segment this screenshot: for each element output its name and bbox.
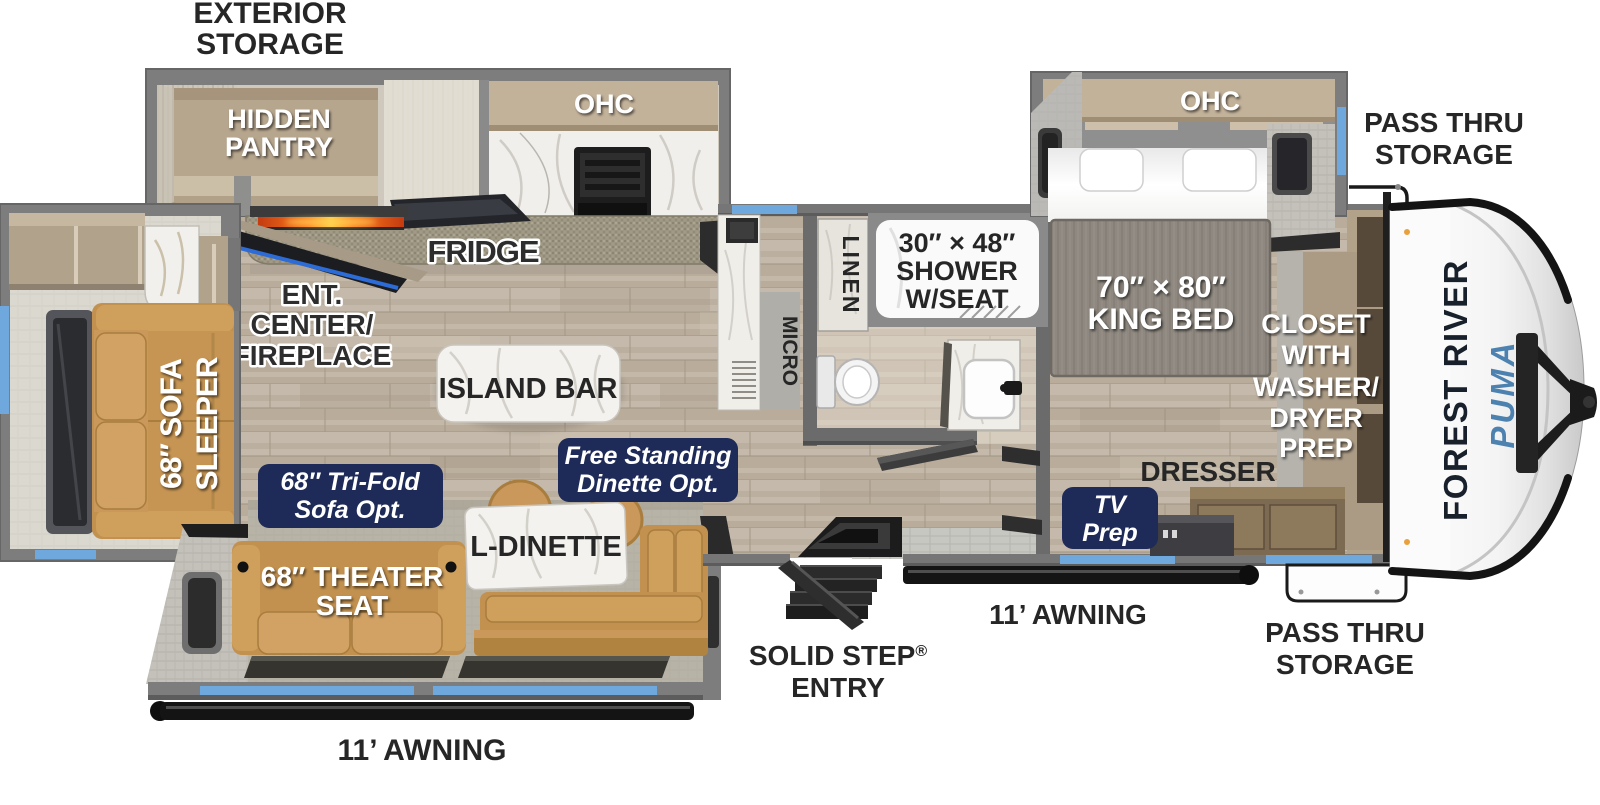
- svg-text:STORAGE: STORAGE: [196, 28, 344, 61]
- svg-text:LINEN: LINEN: [838, 236, 864, 315]
- svg-text:FRIDGE: FRIDGE: [427, 234, 538, 269]
- svg-text:SHOWER: SHOWER: [896, 256, 1018, 286]
- svg-text:W/SEAT: W/SEAT: [906, 284, 1009, 314]
- svg-text:11’ AWNING: 11’ AWNING: [338, 734, 507, 767]
- svg-text:HIDDEN: HIDDEN: [227, 104, 331, 134]
- svg-text:SLEEPER: SLEEPER: [191, 356, 224, 490]
- svg-text:OHC: OHC: [1180, 86, 1240, 116]
- svg-text:Dinette Opt.: Dinette Opt.: [577, 470, 719, 498]
- svg-text:OHC: OHC: [574, 89, 634, 119]
- svg-text:L-DINETTE: L-DINETTE: [470, 531, 621, 563]
- svg-text:PUMA: PUMA: [1484, 339, 1521, 448]
- svg-text:68″ THEATER: 68″ THEATER: [261, 561, 443, 592]
- svg-text:ISLAND BAR: ISLAND BAR: [439, 373, 618, 405]
- svg-text:STORAGE: STORAGE: [1276, 649, 1414, 680]
- svg-text:68″ SOFA: 68″ SOFA: [155, 359, 188, 489]
- svg-text:FOREST RIVER: FOREST RIVER: [1437, 259, 1474, 521]
- svg-text:FIREPLACE: FIREPLACE: [233, 340, 392, 371]
- svg-text:KING BED: KING BED: [1088, 303, 1235, 336]
- svg-text:30″ × 48″: 30″ × 48″: [899, 228, 1016, 258]
- svg-text:ENT.: ENT.: [282, 279, 343, 310]
- svg-text:CENTER/: CENTER/: [251, 309, 374, 340]
- svg-text:SOLID STEP®: SOLID STEP®: [749, 640, 927, 671]
- svg-text:MICRO: MICRO: [778, 316, 801, 386]
- svg-text:TV: TV: [1094, 491, 1128, 519]
- svg-text:11’ AWNING: 11’ AWNING: [989, 599, 1147, 630]
- svg-text:ENTRY: ENTRY: [791, 672, 885, 703]
- svg-text:68″ Tri-Fold: 68″ Tri-Fold: [280, 468, 420, 496]
- svg-text:WITH: WITH: [1282, 340, 1351, 370]
- svg-text:STORAGE: STORAGE: [1375, 139, 1513, 170]
- svg-text:WASHER/: WASHER/: [1253, 372, 1380, 402]
- svg-text:Prep: Prep: [1082, 519, 1138, 547]
- svg-text:PANTRY: PANTRY: [225, 132, 333, 162]
- svg-text:Free Standing: Free Standing: [565, 442, 732, 470]
- svg-text:PASS THRU: PASS THRU: [1265, 617, 1425, 648]
- svg-text:CLOSET: CLOSET: [1261, 309, 1371, 339]
- svg-text:PASS THRU: PASS THRU: [1364, 107, 1524, 138]
- svg-text:PREP: PREP: [1279, 433, 1353, 463]
- svg-text:DRYER: DRYER: [1269, 403, 1363, 433]
- svg-text:70″ × 80″: 70″ × 80″: [1096, 271, 1226, 304]
- svg-text:DRESSER: DRESSER: [1140, 456, 1275, 487]
- svg-text:SEAT: SEAT: [316, 590, 389, 621]
- svg-text:Sofa Opt.: Sofa Opt.: [294, 496, 405, 524]
- svg-text:EXTERIOR: EXTERIOR: [193, 0, 347, 30]
